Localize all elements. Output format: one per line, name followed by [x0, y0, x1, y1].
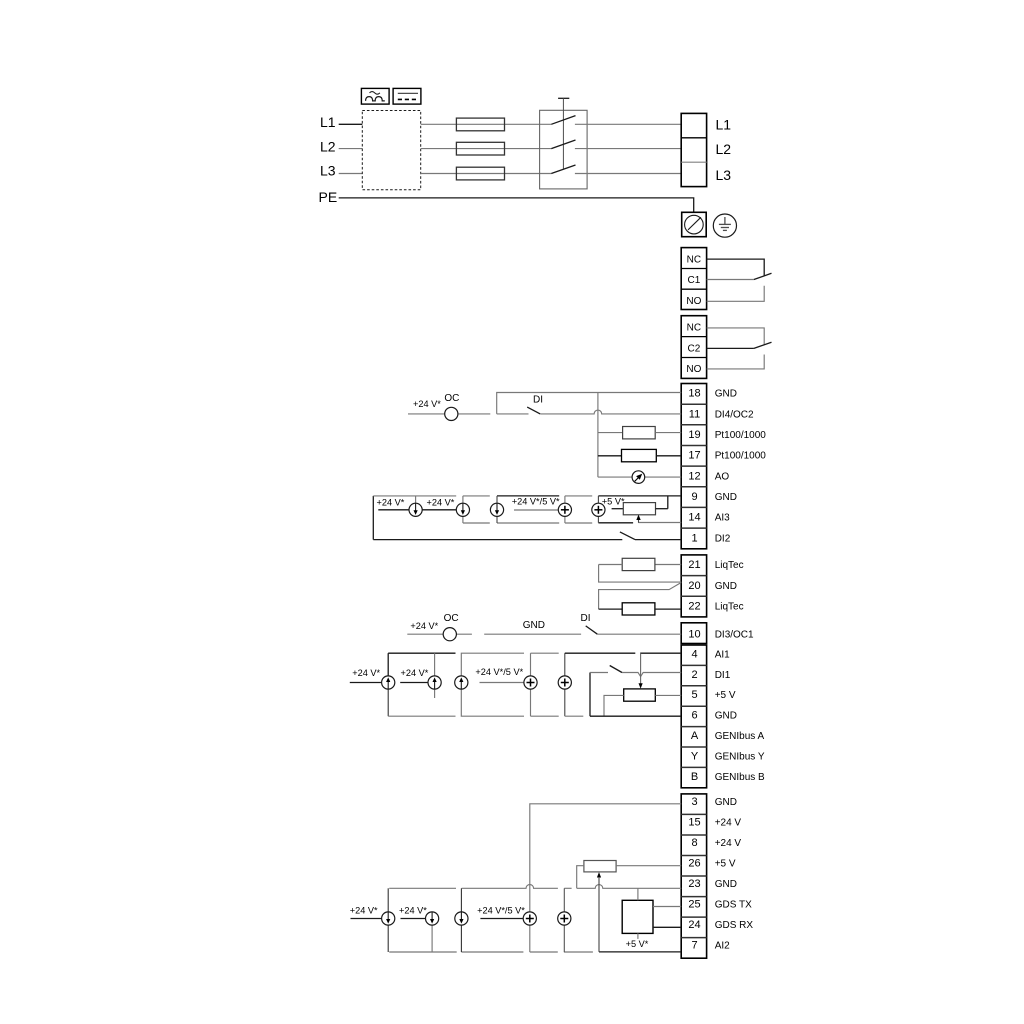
svg-text:+24 V*: +24 V* — [377, 497, 405, 507]
svg-text:OC: OC — [444, 393, 459, 404]
svg-text:+5 V*: +5 V* — [626, 939, 649, 949]
svg-text:GENIbus B: GENIbus B — [715, 772, 765, 783]
svg-text:L3: L3 — [716, 167, 732, 183]
svg-text:6: 6 — [691, 710, 697, 722]
svg-text:NC: NC — [687, 322, 701, 333]
svg-text:C2: C2 — [688, 343, 701, 354]
svg-text:GDS RX: GDS RX — [715, 920, 754, 931]
svg-text:DI: DI — [581, 613, 591, 624]
svg-text:+24 V*: +24 V* — [410, 621, 438, 631]
svg-text:15: 15 — [688, 816, 700, 828]
svg-text:Y: Y — [691, 750, 699, 762]
svg-text:AO: AO — [715, 471, 730, 482]
svg-text:C1: C1 — [688, 275, 701, 286]
svg-text:1: 1 — [691, 532, 697, 544]
svg-text:19: 19 — [688, 429, 700, 441]
svg-text:L1: L1 — [716, 116, 732, 132]
svg-text:LiqTec: LiqTec — [715, 601, 744, 612]
svg-text:NC: NC — [687, 254, 701, 265]
svg-text:AI2: AI2 — [715, 941, 730, 952]
svg-text:+24 V*: +24 V* — [350, 905, 378, 915]
svg-text:NO: NO — [686, 296, 701, 307]
svg-text:OC: OC — [444, 613, 459, 624]
svg-text:4: 4 — [691, 648, 697, 660]
svg-text:+5 V: +5 V — [715, 690, 736, 701]
svg-text:+24 V*: +24 V* — [401, 668, 429, 678]
svg-text:GND: GND — [715, 389, 737, 400]
svg-text:+24 V: +24 V — [715, 838, 742, 849]
svg-text:14: 14 — [688, 512, 700, 524]
svg-text:7: 7 — [691, 940, 697, 952]
svg-text:GND: GND — [715, 492, 737, 503]
svg-text:Pt100/1000: Pt100/1000 — [715, 451, 767, 462]
svg-text:+24 V*/5 V*: +24 V*/5 V* — [512, 497, 560, 507]
svg-text:L3: L3 — [320, 162, 336, 178]
svg-text:GENIbus A: GENIbus A — [715, 731, 765, 742]
svg-text:17: 17 — [688, 450, 700, 462]
svg-text:22: 22 — [688, 600, 700, 612]
svg-text:5: 5 — [691, 689, 697, 701]
svg-text:GND: GND — [715, 581, 737, 592]
svg-text:DI: DI — [533, 394, 543, 405]
svg-text:21: 21 — [688, 559, 700, 571]
svg-text:GENIbus Y: GENIbus Y — [715, 751, 765, 762]
svg-text:GDS TX: GDS TX — [715, 900, 752, 911]
svg-text:DI1: DI1 — [715, 670, 731, 681]
svg-text:26: 26 — [688, 858, 700, 870]
svg-text:+24 V*/5 V*: +24 V*/5 V* — [477, 905, 525, 915]
svg-text:NO: NO — [686, 364, 701, 375]
svg-text:8: 8 — [691, 837, 697, 849]
svg-text:24: 24 — [688, 919, 700, 931]
svg-text:+24 V: +24 V — [715, 817, 742, 828]
svg-text:B: B — [691, 771, 698, 783]
svg-text:LiqTec: LiqTec — [715, 560, 744, 571]
svg-text:GND: GND — [523, 620, 545, 631]
svg-text:DI3/OC1: DI3/OC1 — [715, 630, 754, 641]
svg-text:DI4/OC2: DI4/OC2 — [715, 409, 754, 420]
svg-text:3: 3 — [691, 796, 697, 808]
svg-text:11: 11 — [689, 408, 700, 420]
svg-text:9: 9 — [691, 491, 697, 503]
svg-text:+24 V*: +24 V* — [352, 668, 380, 678]
svg-text:25: 25 — [688, 899, 700, 911]
svg-text:A: A — [691, 730, 699, 742]
svg-text:GND: GND — [715, 711, 737, 722]
svg-text:PE: PE — [319, 189, 338, 205]
svg-text:L1: L1 — [320, 114, 336, 130]
svg-text:+5 V: +5 V — [715, 859, 736, 870]
svg-text:GND: GND — [715, 879, 737, 890]
svg-text:AI1: AI1 — [715, 649, 730, 660]
svg-text:GND: GND — [715, 797, 737, 808]
svg-text:10: 10 — [688, 629, 700, 641]
svg-text:2: 2 — [691, 669, 697, 681]
svg-text:Pt100/1000: Pt100/1000 — [715, 430, 767, 441]
svg-text:+5 V*: +5 V* — [602, 497, 625, 507]
svg-text:+24 V*: +24 V* — [427, 497, 455, 507]
svg-text:12: 12 — [688, 470, 700, 482]
svg-text:18: 18 — [688, 388, 700, 400]
svg-text:+24 V*: +24 V* — [399, 905, 427, 915]
svg-text:23: 23 — [688, 878, 700, 890]
svg-text:L2: L2 — [716, 141, 732, 157]
svg-text:+24 V*: +24 V* — [413, 399, 441, 409]
svg-text:AI3: AI3 — [715, 513, 730, 524]
svg-text:L2: L2 — [320, 138, 336, 154]
svg-text:+24 V*/5 V*: +24 V*/5 V* — [475, 667, 523, 677]
svg-text:DI2: DI2 — [715, 533, 731, 544]
svg-text:20: 20 — [688, 580, 700, 592]
